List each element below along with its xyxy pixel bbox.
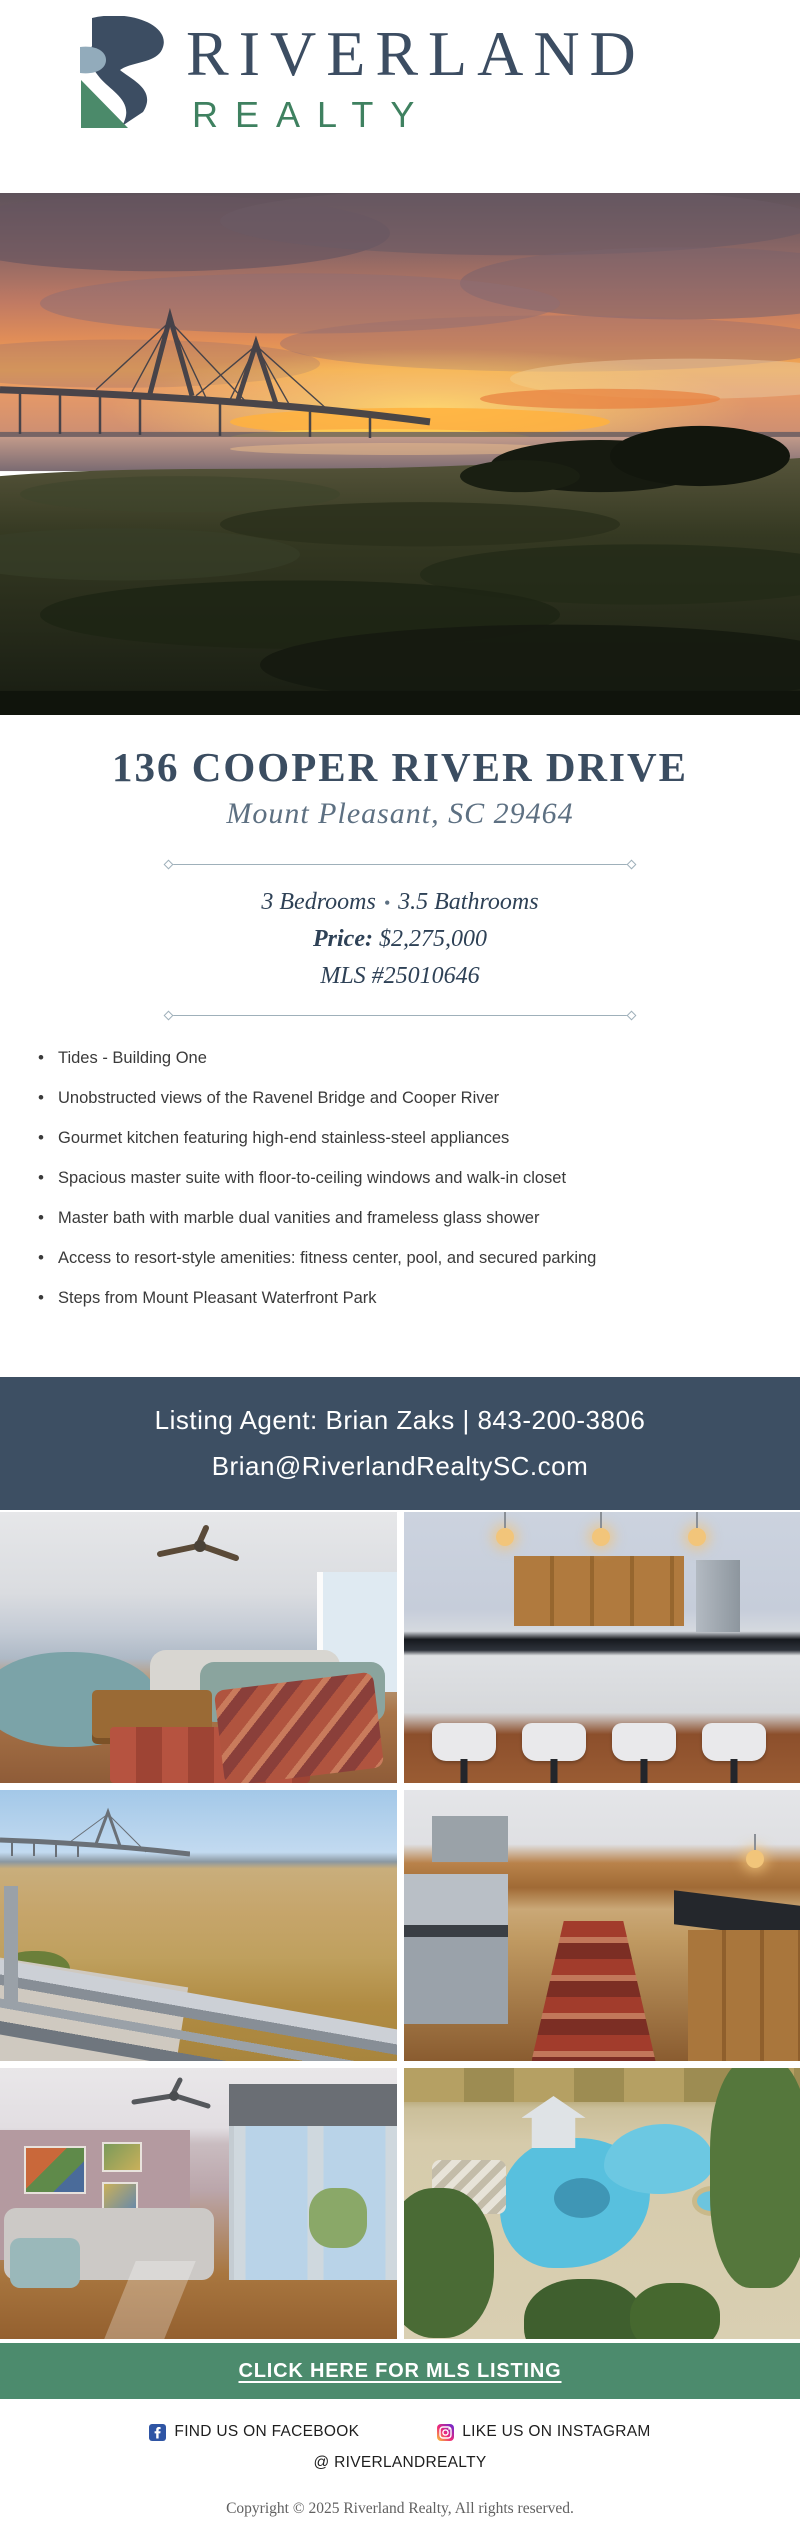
feature-item: Unobstructed views of the Ravenel Bridge…: [36, 1089, 792, 1108]
cta-banner: CLICK HERE FOR MLS LISTING: [0, 2343, 800, 2399]
listing-stats: 3 Bedrooms•3.5 Bathrooms Price: $2,275,0…: [165, 884, 635, 996]
feature-item: Access to resort-style amenities: fitnes…: [36, 1249, 792, 1268]
price-line: Price: $2,275,000: [165, 921, 635, 958]
feature-item: Gourmet kitchen featuring high-end stain…: [36, 1129, 792, 1148]
logo: RIVERLAND REALTY: [0, 0, 800, 193]
hero-photo-sunset-bridge: [0, 193, 800, 715]
range-hood: [432, 1816, 508, 1862]
diamond-icon: [627, 1010, 637, 1020]
bar-stool: [432, 1723, 496, 1761]
baths-value: 3.5 Bathrooms: [398, 889, 538, 915]
pendant-light-icon: [746, 1850, 764, 1868]
feature-item: Steps from Mount Pleasant Waterfront Par…: [36, 1289, 792, 1308]
listing-city: Mount Pleasant, SC 29464: [0, 797, 800, 831]
feature-item: Spacious master suite with floor-to-ceil…: [36, 1169, 792, 1188]
facebook-link[interactable]: FIND US ON FACEBOOK: [149, 2423, 359, 2441]
pendant-light-icon: [496, 1528, 514, 1546]
price-value: $2,275,000: [373, 926, 487, 952]
listing-address: 136 COOPER RIVER DRIVE: [0, 743, 800, 791]
social-row: FIND US ON FACEBOOK LIKE US ON INSTAGRAM: [0, 2423, 800, 2441]
feature-item: Master bath with marble dual vanities an…: [36, 1209, 792, 1228]
mls-listing-link[interactable]: CLICK HERE FOR MLS LISTING: [238, 2360, 561, 2383]
divider-bottom: [165, 1012, 635, 1019]
ceiling-fan-icon: [120, 2076, 230, 2116]
stainless-range: [404, 1874, 508, 2024]
agent-banner: Listing Agent: Brian Zaks | 843-200-3806…: [0, 1377, 800, 1510]
pool-lagoon-arm: [604, 2124, 714, 2194]
price-label: Price:: [313, 926, 373, 952]
photo-kitchen-bar: [404, 1512, 800, 1783]
photo-living-room: [0, 1512, 397, 1783]
brand-name-bottom: REALTY: [192, 94, 646, 136]
instagram-icon: [437, 2424, 454, 2441]
photo-kitchen-runner: [404, 1790, 800, 2061]
instagram-label: LIKE US ON INSTAGRAM: [462, 2423, 650, 2441]
photo-balcony-view: [0, 1790, 397, 2061]
bar-stool: [612, 1723, 676, 1761]
footer: FIND US ON FACEBOOK LIKE US ON INSTAGRAM: [0, 2399, 800, 2529]
photo-grid: [0, 1512, 800, 2339]
diamond-icon: [164, 1010, 174, 1020]
teal-throw: [10, 2238, 80, 2288]
facebook-label: FIND US ON FACEBOOK: [174, 2423, 359, 2441]
email-page: RIVERLAND REALTY: [0, 0, 800, 2529]
red-runner-rug: [532, 1921, 656, 2061]
wood-cabinets: [514, 1556, 684, 1626]
instagram-link[interactable]: LIKE US ON INSTAGRAM: [437, 2423, 650, 2441]
beds-value: 3 Bedrooms: [261, 889, 375, 915]
agent-email-link[interactable]: Brian@RiverlandRealtySC.com: [212, 1451, 589, 1482]
divider-line: [172, 864, 628, 865]
feature-list: Tides - Building One Unobstructed views …: [36, 1049, 792, 1308]
divider-line: [172, 1015, 628, 1016]
wall-art: [102, 2142, 142, 2172]
window-shade: [229, 2084, 397, 2126]
dot-separator: •: [376, 893, 398, 913]
beds-baths-line: 3 Bedrooms•3.5 Bathrooms: [165, 884, 635, 921]
bar-stool: [522, 1723, 586, 1761]
wall-art: [24, 2146, 86, 2194]
palm-cluster: [710, 2068, 800, 2288]
listing-info-section: 136 COOPER RIVER DRIVE Mount Pleasant, S…: [0, 715, 800, 1377]
photo-den: [0, 2068, 397, 2339]
mls-line: MLS #25010646: [165, 958, 635, 995]
stainless-fridge: [696, 1560, 740, 1632]
pendant-light-icon: [688, 1528, 706, 1546]
copyright-text: Copyright © 2025 Riverland Realty, All r…: [0, 2500, 800, 2518]
bridge-silhouette: [0, 1804, 190, 1864]
bar-stool: [702, 1723, 766, 1761]
railing-post: [4, 1886, 18, 2006]
logo-text: RIVERLAND REALTY: [186, 16, 646, 136]
brand-name-top: RIVERLAND: [186, 22, 646, 86]
listing-details: 3 Bedrooms•3.5 Bathrooms Price: $2,275,0…: [165, 861, 635, 1019]
agent-name-phone: Listing Agent: Brian Zaks | 843-200-3806: [155, 1405, 646, 1436]
palm-cluster: [404, 2188, 494, 2338]
palm-shadow: [554, 2178, 610, 2218]
palm-cluster: [630, 2283, 720, 2339]
photo-pool-aerial: [404, 2068, 800, 2339]
throw-blanket: [213, 1672, 384, 1783]
feature-item: Tides - Building One: [36, 1049, 792, 1068]
balcony-greenery: [309, 2188, 367, 2248]
divider-top: [165, 861, 635, 868]
pendant-light-icon: [592, 1528, 610, 1546]
diamond-icon: [627, 860, 637, 870]
palm-cluster: [524, 2279, 644, 2339]
diamond-icon: [164, 860, 174, 870]
lower-cabinets: [688, 1930, 800, 2061]
wall-art: [102, 2182, 138, 2210]
ceiling-fan-icon: [140, 1524, 260, 1568]
riverland-logo-mark-icon: [72, 16, 176, 140]
social-handle: @ RIVERLANDREALTY: [0, 2454, 800, 2472]
facebook-icon: [149, 2424, 166, 2441]
